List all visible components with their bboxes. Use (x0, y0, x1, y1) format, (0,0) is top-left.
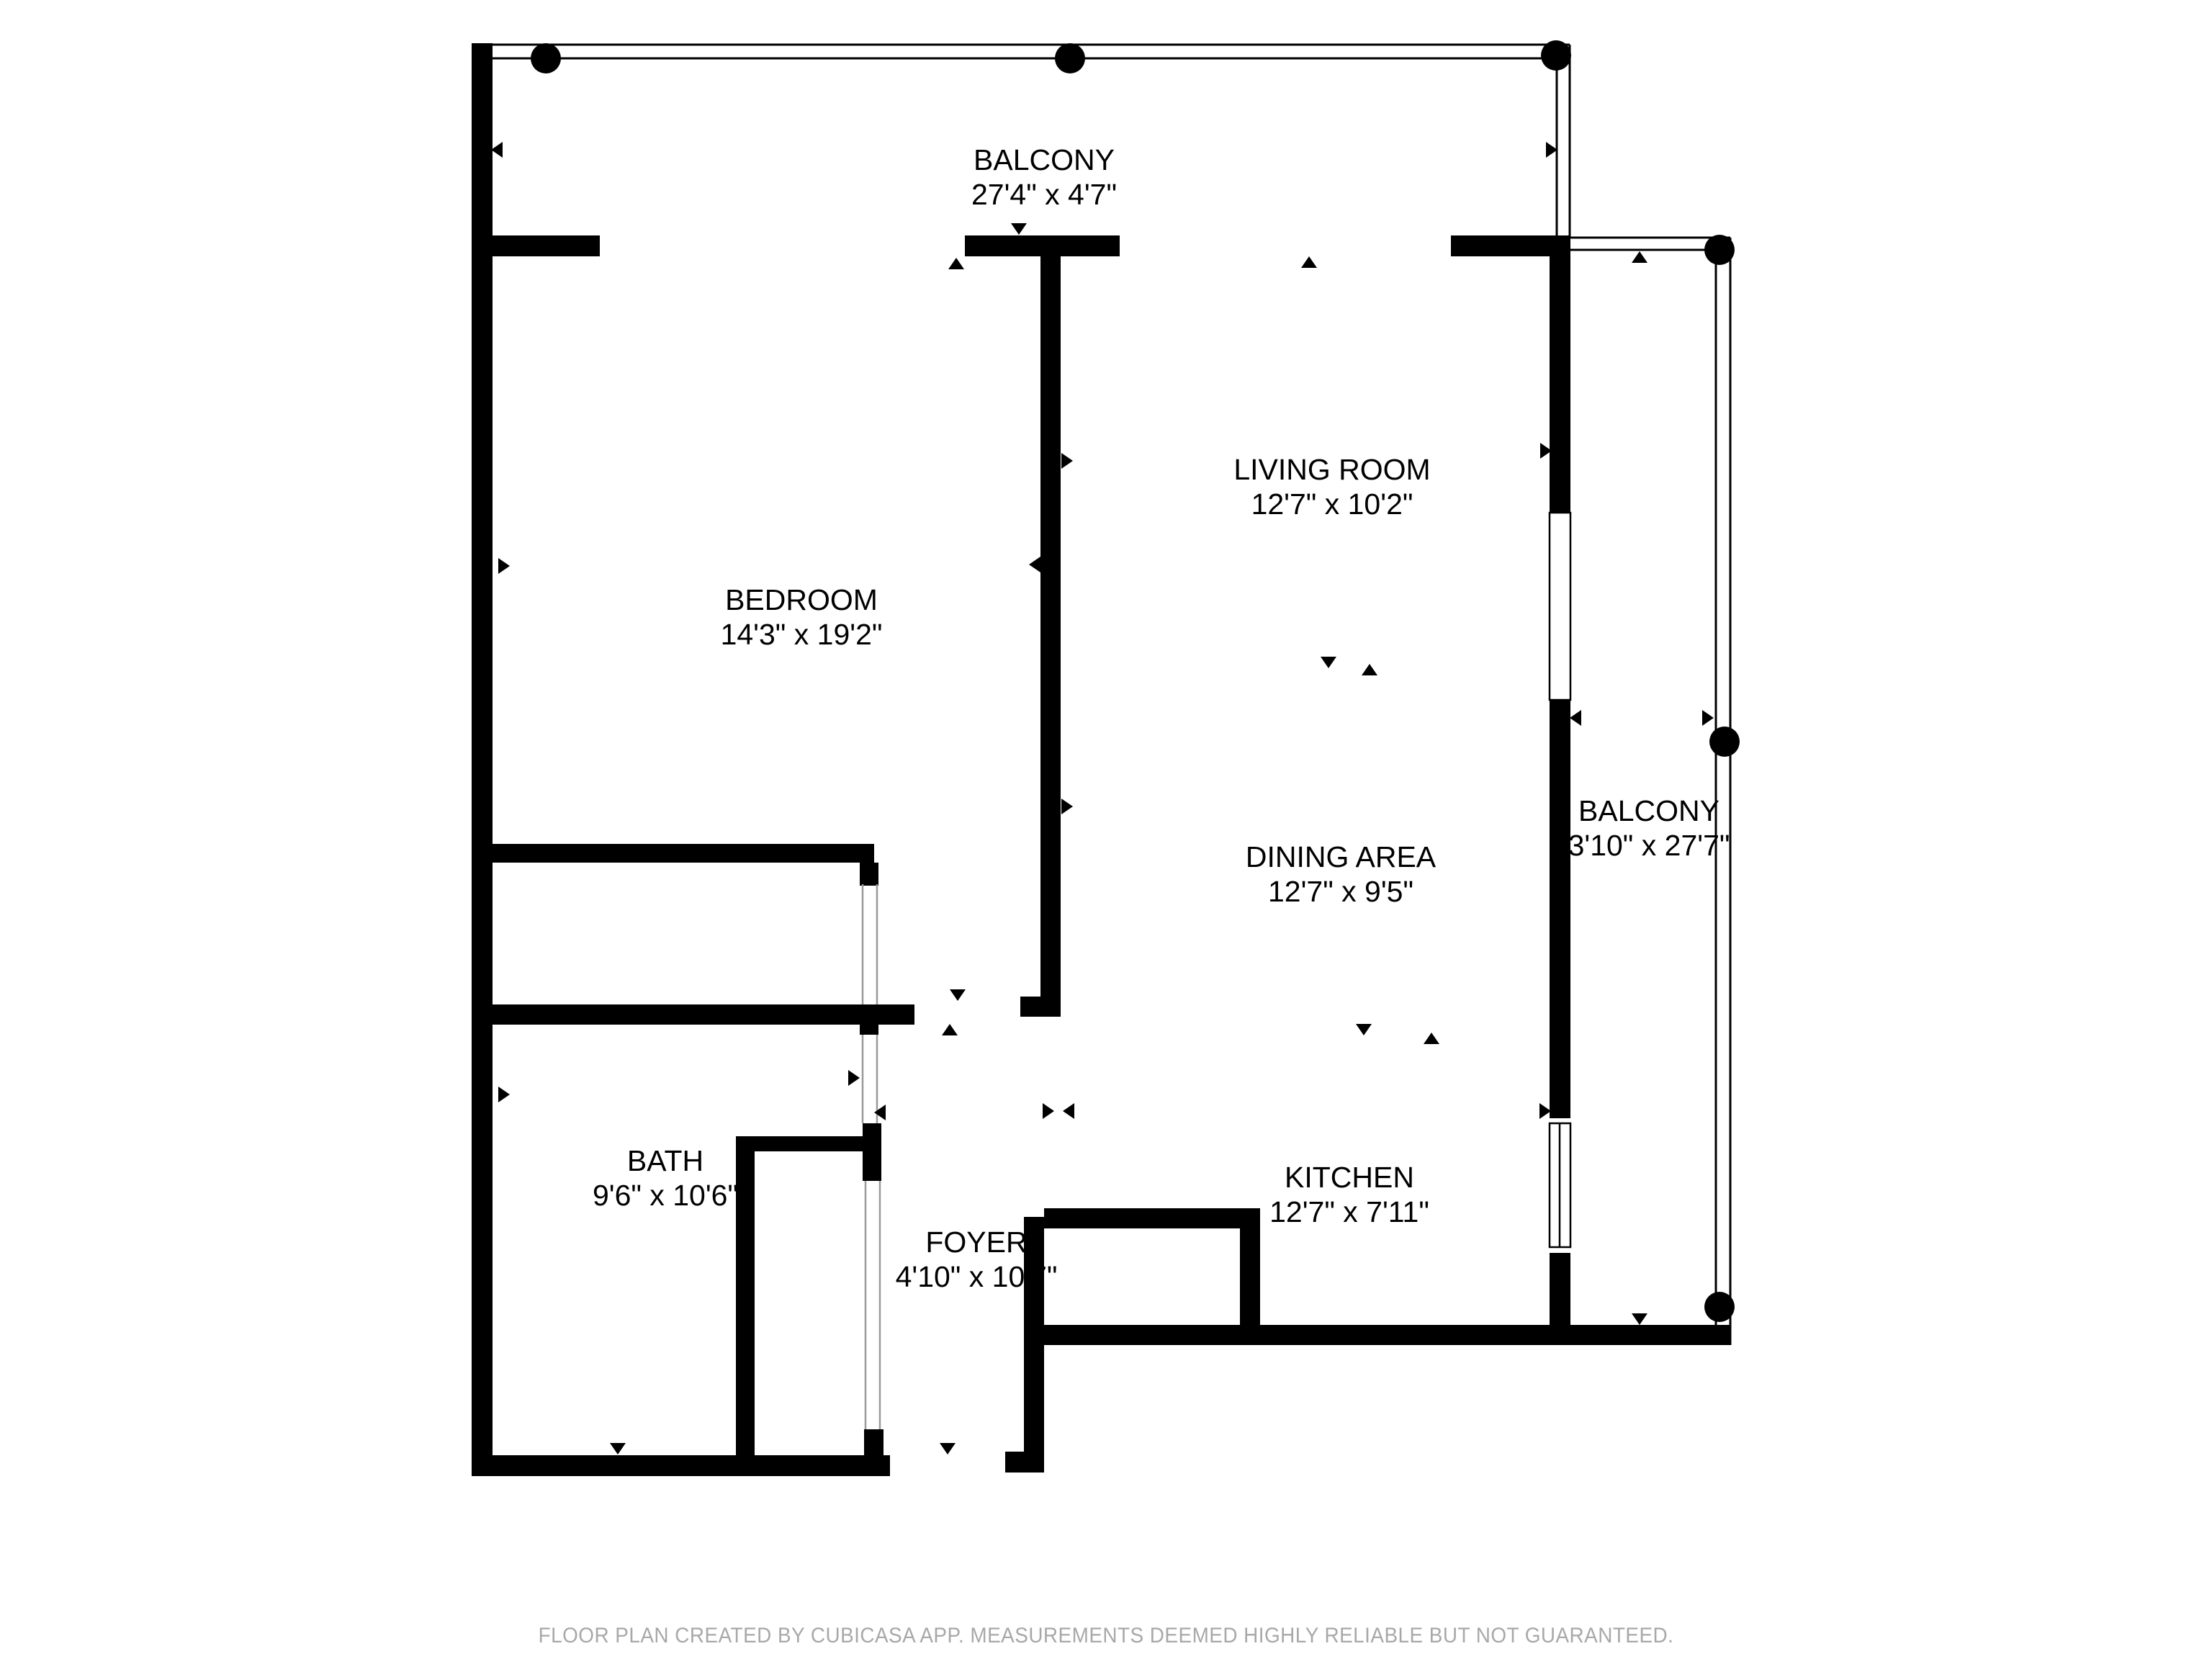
direction-arrow-icon (1321, 657, 1336, 668)
direction-arrow-icon (1301, 256, 1317, 268)
direction-arrow-icon (1632, 251, 1647, 263)
direction-arrow-icon (1570, 710, 1581, 726)
direction-arrow-icon (1362, 664, 1377, 675)
corner-dot (1541, 40, 1571, 71)
floor-plan-canvas: BALCONY 27'4" x 4'7" LIVING ROOM 12'7" x… (0, 0, 2212, 1659)
wall (472, 1004, 914, 1025)
corner-dot (1704, 235, 1735, 265)
window (1550, 513, 1570, 700)
direction-arrow-icon (1702, 710, 1714, 726)
walls-layer (472, 43, 1730, 1476)
direction-arrow-icon (1061, 799, 1073, 814)
wall (860, 863, 878, 886)
wall (863, 1123, 881, 1181)
corner-dot (531, 43, 561, 73)
direction-arrow-icon (950, 989, 966, 1001)
direction-arrow-icon (1539, 1103, 1551, 1119)
wall (1044, 1208, 1260, 1228)
wall (736, 1136, 863, 1151)
direction-arrow-icon (498, 558, 510, 574)
wall (736, 1136, 755, 1455)
wall (1240, 1228, 1260, 1325)
floor-plan-drawing (0, 0, 2212, 1659)
corner-dot (1055, 43, 1085, 73)
direction-arrow-icon (1061, 453, 1073, 469)
wall (1550, 250, 1570, 513)
direction-arrow-icon (1424, 1033, 1439, 1044)
wall (472, 235, 600, 256)
direction-arrow-icon (491, 142, 503, 158)
wall (860, 1025, 878, 1035)
corner-dot (1709, 727, 1740, 757)
direction-arrow-icon (1632, 1313, 1647, 1325)
direction-arrow-icon (1011, 223, 1027, 235)
direction-arrow-icon (498, 1087, 510, 1102)
wall (1040, 1325, 1730, 1345)
wall (1005, 1452, 1024, 1473)
wall (1550, 700, 1570, 1118)
direction-arrow-icon (874, 1105, 886, 1120)
wall (472, 844, 874, 863)
direction-arrow-icon (1356, 1024, 1372, 1035)
direction-arrow-icon (940, 1443, 956, 1455)
wall (1040, 256, 1061, 997)
direction-arrow-icon (610, 1443, 626, 1455)
wall (1024, 1217, 1044, 1473)
direction-arrow-icon (1029, 557, 1040, 572)
direction-arrow-icon (848, 1070, 860, 1086)
direction-arrow-icon (948, 258, 964, 269)
direction-arrows-layer (491, 142, 1714, 1455)
wall (965, 235, 1120, 256)
direction-arrow-icon (942, 1024, 958, 1035)
wall (472, 43, 493, 1476)
corner-dot (1704, 1292, 1735, 1322)
direction-arrow-icon (1043, 1103, 1054, 1119)
wall (472, 1455, 890, 1476)
wall (864, 1429, 884, 1455)
wall (1020, 997, 1061, 1017)
direction-arrow-icon (1063, 1103, 1074, 1119)
